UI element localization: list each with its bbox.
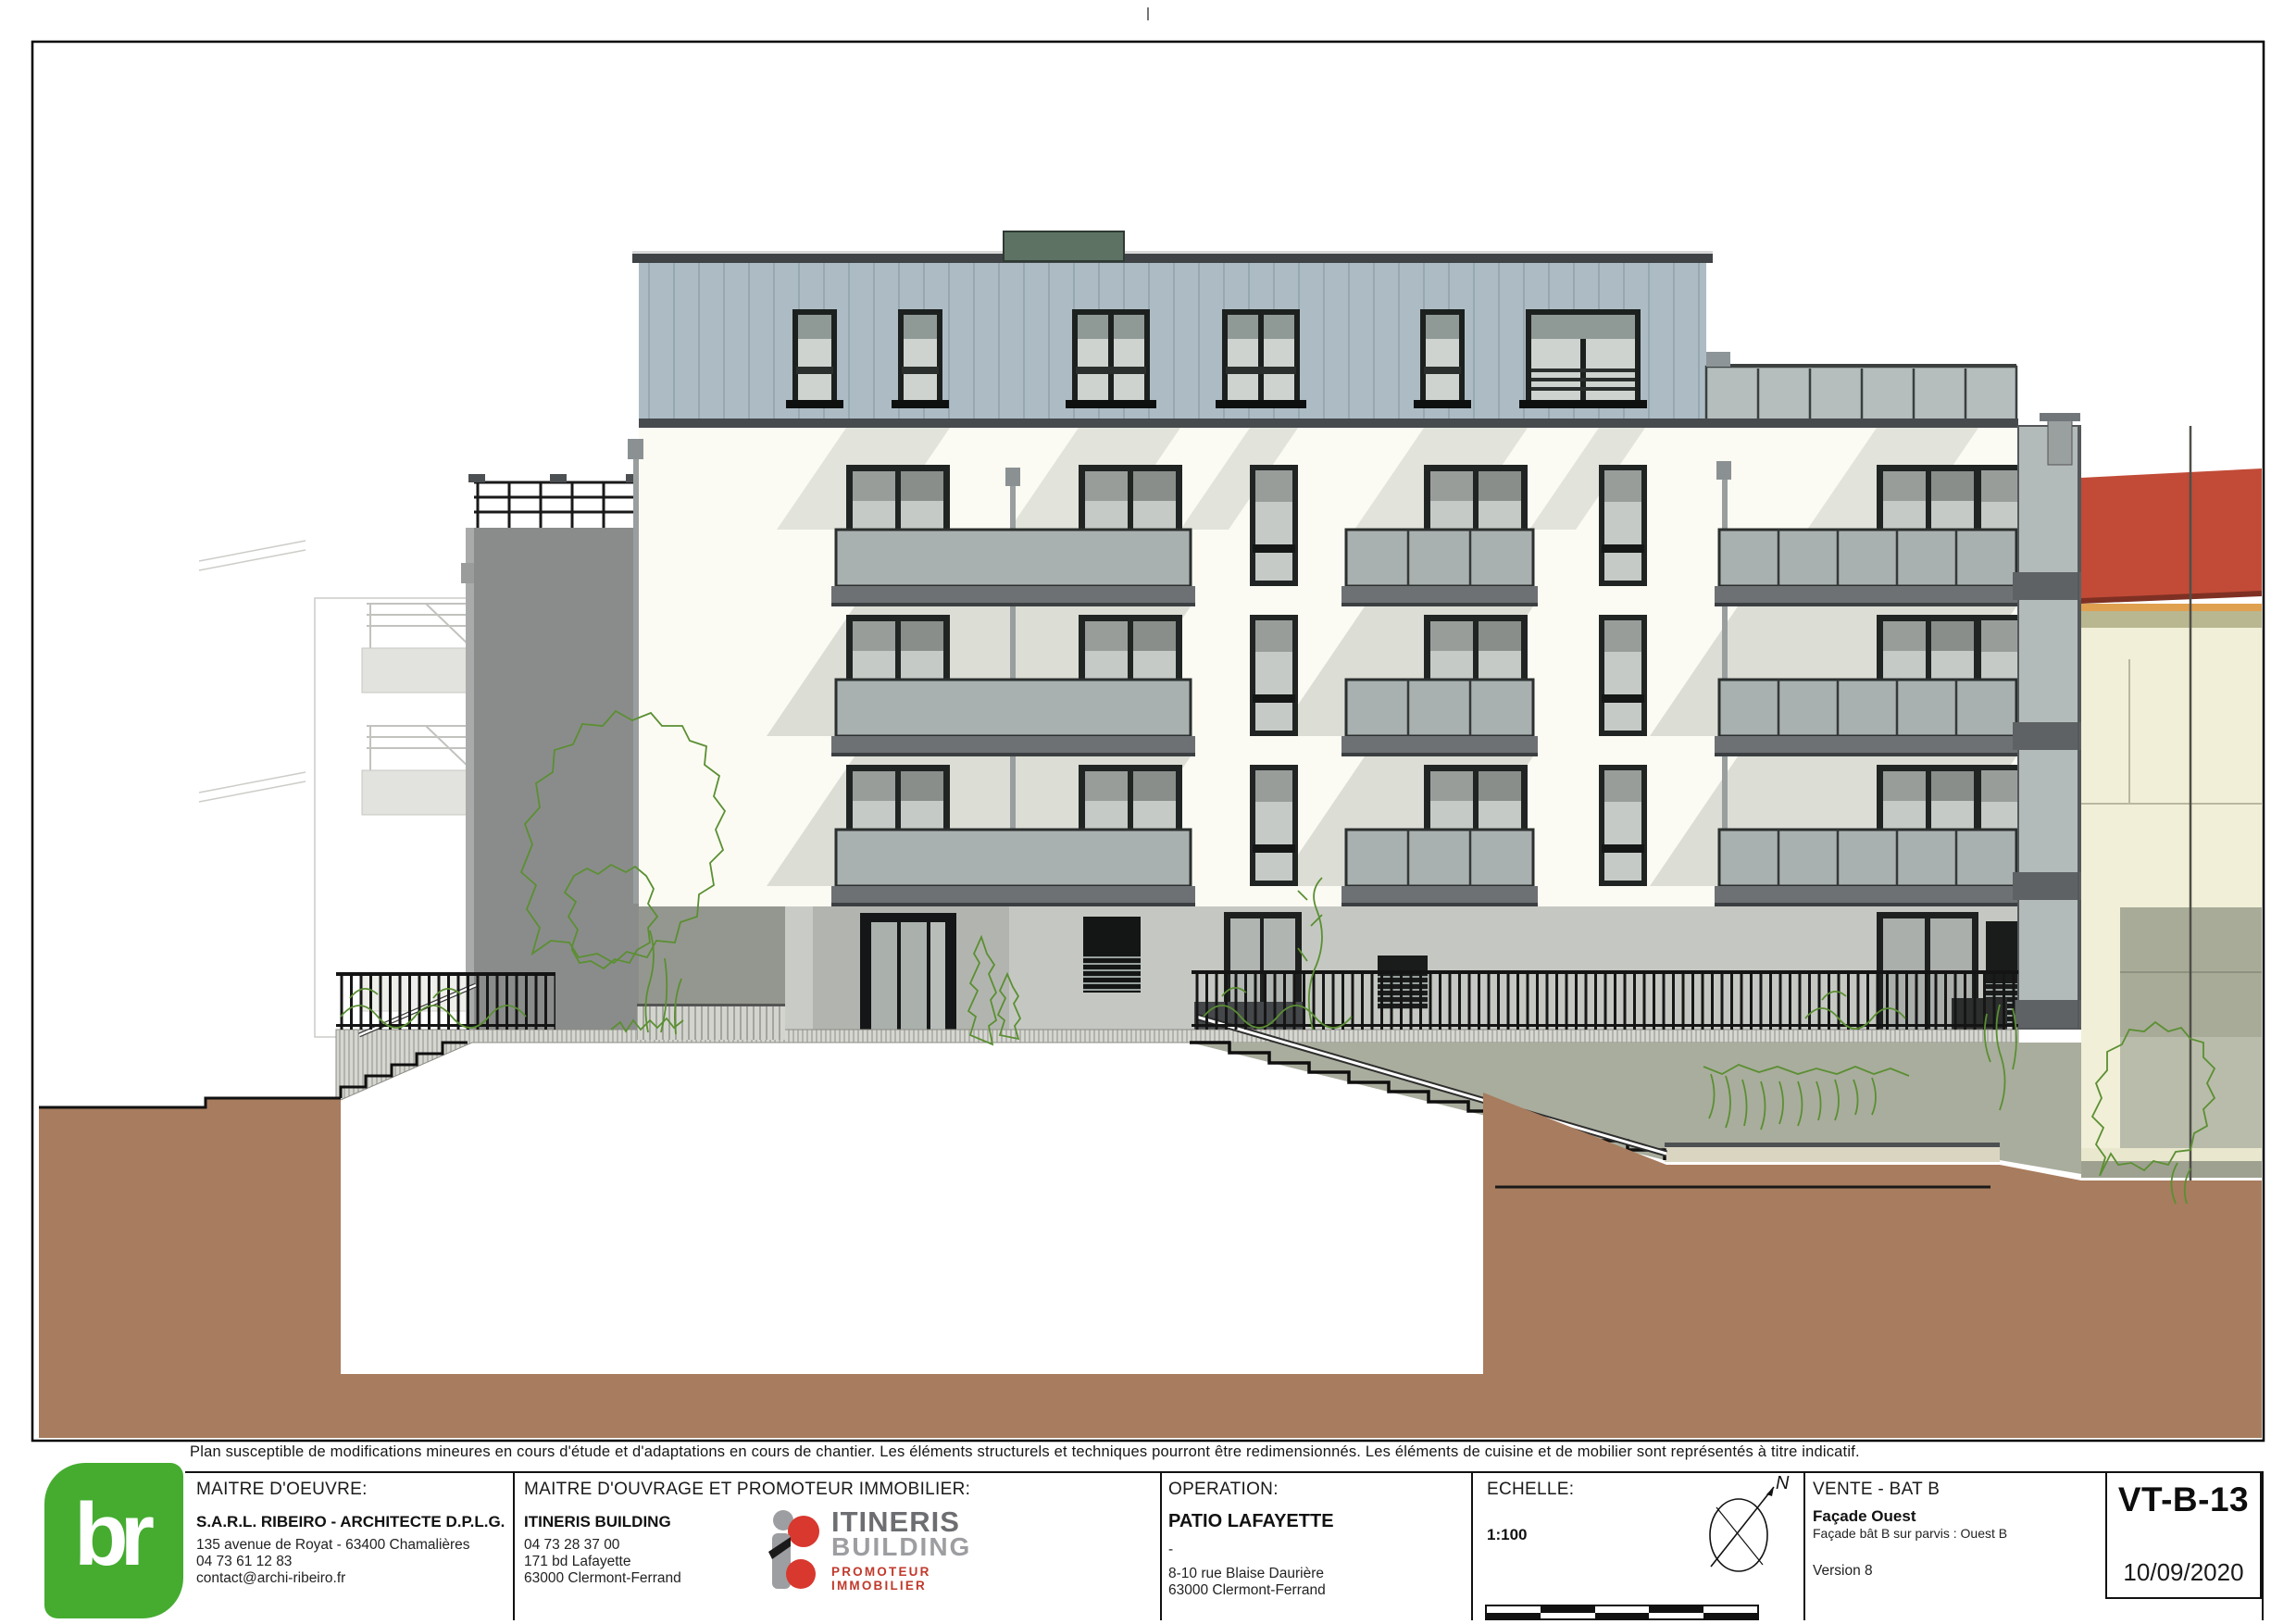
neighbor-balcony-slab [362, 770, 474, 815]
titleblock-divider [1471, 1471, 1473, 1620]
vente-version: Version 8 [1813, 1563, 2100, 1580]
maitre-oeuvre-phone: 04 73 61 12 83 [196, 1554, 506, 1570]
operation-section: OPERATION: PATIO LAFAYETTE - 8-10 rue Bl… [1168, 1480, 1465, 1599]
maitre-oeuvre-address: 135 avenue de Royat - 63400 Chamalières [196, 1537, 506, 1554]
attic-base-band [639, 418, 2018, 428]
roof-cap [632, 254, 1713, 263]
entrance-planter [637, 1004, 785, 1040]
titleblock-top-rule [185, 1471, 2262, 1473]
garden-walkway [1665, 1143, 2000, 1162]
titleblock-divider [1160, 1471, 1162, 1620]
roof-box [1004, 231, 1124, 261]
operation-name: PATIO LAFAYETTE [1168, 1511, 1465, 1532]
maitre-oeuvre-section: MAITRE D'OEUVRE: S.A.R.L. RIBEIRO - ARCH… [196, 1480, 506, 1587]
itineris-logo: ITINERIS BUILDING PROMOTEUR IMMOBILIER [763, 1509, 1004, 1602]
dark-gable-wall [461, 474, 643, 1032]
svg-text:N: N [1776, 1474, 1790, 1493]
roof-railing [474, 482, 639, 528]
facade-elevation-drawing [0, 0, 2296, 1624]
louver-vent [1083, 917, 1141, 993]
titleblock-divider [513, 1471, 515, 1620]
fence-right [1192, 970, 2018, 1030]
vente-section: VENTE - BAT B Façade Ouest Façade bât B … [1813, 1480, 2100, 1580]
architect-logo: br [44, 1463, 183, 1618]
maitre-oeuvre-name: S.A.R.L. RIBEIRO - ARCHITECTE D.P.L.G. [196, 1513, 506, 1531]
neighbor-balcony-slab [362, 648, 474, 693]
titleblock-right-rule [2262, 1471, 2264, 1620]
attic-floor [632, 231, 1713, 426]
itineris-logo-icon [763, 1509, 822, 1602]
maitre-oeuvre-email: contact@archi-ribeiro.fr [196, 1570, 506, 1587]
drawing-date: 10/09/2020 [2107, 1558, 2260, 1587]
drawing-code: VT-B-13 [2107, 1480, 2260, 1519]
entrance-door [860, 913, 956, 1043]
titleblock-divider [1803, 1471, 1805, 1620]
left-neighbor-building [315, 598, 474, 1037]
operation-label: OPERATION: [1168, 1480, 1465, 1500]
operation-city: 63000 Clermont-Ferrand [1168, 1582, 1465, 1599]
maitre-ouvrage-label: MAITRE D'OUVRAGE ET PROMOTEUR IMMOBILIER… [524, 1480, 1154, 1500]
vente-label: VENTE - BAT B [1813, 1480, 2100, 1500]
north-compass-icon: N [1694, 1474, 1796, 1590]
architect-logo-text: br [74, 1484, 146, 1586]
fence-left [336, 972, 555, 1030]
maitre-oeuvre-label: MAITRE D'OEUVRE: [196, 1480, 506, 1500]
side-balcony-stack [2013, 413, 2087, 1029]
disclaimer-text: Plan susceptible de modifications mineur… [190, 1443, 2268, 1461]
roof-terrace-balustrade [1706, 352, 2016, 420]
scale-bar [1485, 1605, 1759, 1620]
drawing-sheet: Plan susceptible de modifications mineur… [0, 0, 2296, 1624]
operation-dash: - [1168, 1542, 1465, 1558]
balconies [831, 530, 2021, 906]
vente-subtitle: Façade bât B sur parvis : Ouest B [1813, 1526, 2100, 1541]
neighbor-section-right [2081, 468, 2262, 1178]
reference-box: VT-B-13 10/09/2020 [2105, 1471, 2262, 1599]
operation-address: 8-10 rue Blaise Daurière [1168, 1566, 1465, 1582]
neighbor-roof [2081, 468, 2262, 600]
vent-chimney [2048, 418, 2072, 465]
vente-title: Façade Ouest [1813, 1507, 2100, 1526]
